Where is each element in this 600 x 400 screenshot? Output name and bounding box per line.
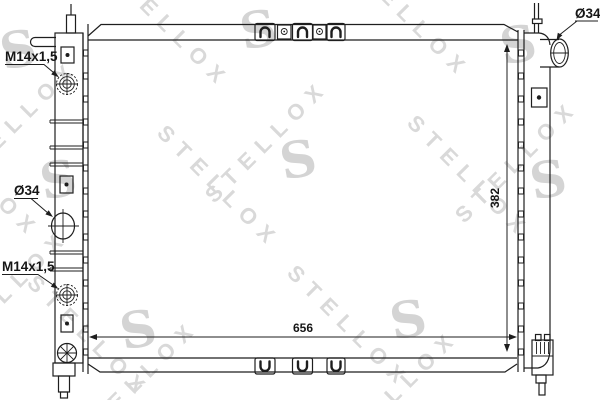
- radiator-technical-drawing: 656 382 M14x1,5 Ø34 M: [0, 0, 600, 400]
- mount-square-bottom: [61, 315, 73, 332]
- label-thread-bottom-left: M14x1,5: [2, 259, 55, 274]
- top-bracket-3: [327, 24, 345, 41]
- left-tank-body: [55, 33, 83, 363]
- dimensions: 656 382 M14x1,5 Ø34 M: [2, 6, 600, 352]
- top-bracket-2: [293, 24, 313, 41]
- callout-pipe-diameter-right: Ø34: [557, 6, 600, 41]
- dim-core-height: 382: [488, 44, 510, 352]
- left-flange-teeth: [84, 50, 89, 355]
- callout-thread-top-left: M14x1,5: [5, 49, 59, 77]
- right-tank-body: [524, 33, 550, 368]
- inlet-stub-pipe-left: [31, 38, 57, 47]
- mount-square-top: [61, 47, 74, 63]
- dim-core-width: 656: [89, 321, 517, 340]
- radiator-catalog-image: STELLOX STELLOX STELLOX STELLOX STELLOX …: [0, 0, 600, 400]
- label-core-height: 382: [488, 188, 502, 208]
- thread-fitting-bottom: [56, 284, 78, 306]
- mount-square-middle: [60, 176, 73, 193]
- outlet-pipe-bottom-right: [536, 375, 546, 395]
- filler-neck: [533, 3, 543, 33]
- pipe-opening-left: [48, 209, 79, 243]
- callout-thread-bottom-left: M14x1,5: [2, 259, 58, 289]
- inlet-pipe-right: [540, 39, 568, 67]
- thread-fitting-top: [56, 73, 78, 95]
- right-flange-teeth: [519, 50, 524, 355]
- label-pipe-diameter-left: Ø34: [14, 183, 40, 198]
- top-bracket-1: [255, 24, 275, 41]
- outlet-pipe-bottom-left: [53, 363, 75, 398]
- label-thread-top-left: M14x1,5: [5, 49, 58, 64]
- label-pipe-diameter-right: Ø34: [575, 6, 600, 21]
- drain-plug: [58, 344, 77, 363]
- top-tab-1: [278, 25, 292, 39]
- right-tank: [518, 3, 568, 395]
- top-tab-2: [313, 25, 326, 39]
- mount-square-right: [532, 88, 548, 107]
- callout-pipe-diameter-left: Ø34: [14, 183, 53, 217]
- label-core-width: 656: [293, 321, 313, 335]
- bleed-pipe-base: [67, 15, 76, 33]
